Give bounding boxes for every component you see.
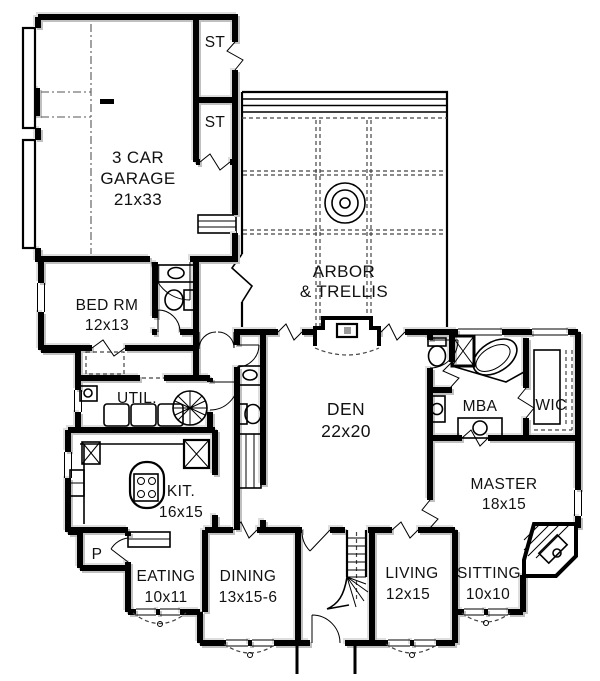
eating-dims: 10x11 [144, 589, 187, 606]
dining-label: DINING [220, 568, 277, 585]
sink-icon [432, 404, 443, 415]
sitting-dims: 10x10 [466, 586, 510, 603]
garage-post-icon [100, 99, 114, 104]
arbor-label: & TRELLIS [300, 282, 388, 301]
powder-room-fixtures [239, 366, 261, 488]
wic-label: WIC [535, 397, 566, 414]
washer-icon [104, 404, 129, 426]
sitting-label: SITTING [457, 565, 521, 582]
living-label: LIVING [385, 565, 438, 582]
entry-stair-icon [327, 530, 368, 609]
garage-door-panel [23, 28, 35, 128]
utility-label: UTIL. [117, 390, 157, 407]
linen-shelves-icon [239, 434, 261, 488]
sink-icon [473, 421, 487, 435]
wic-shelves-icon [534, 350, 572, 430]
spiral-stair-icon [173, 391, 207, 425]
eating-label: EATING [137, 568, 196, 585]
porch-columns [297, 646, 355, 674]
garage-label: GARAGE [100, 169, 175, 188]
bedroom-label: BED RM [76, 297, 139, 314]
living-dims: 12x15 [386, 586, 430, 603]
garage-steps-icon [198, 215, 236, 233]
garage-door-panel [23, 140, 35, 248]
storage1-label: ST [205, 34, 226, 51]
fountain-icon [325, 183, 365, 223]
garage-dims: 21x33 [114, 190, 162, 209]
master-bath-fixtures [428, 332, 524, 438]
kitchen-label: KIT. [167, 483, 195, 500]
bedroom-bath-fixtures [158, 265, 194, 310]
dining-dims: 13x15-6 [219, 589, 278, 606]
toilet-icon [429, 346, 446, 366]
master-dims: 18x15 [482, 496, 526, 513]
den-fireplace-icon [315, 318, 379, 355]
freezer-icon [158, 404, 183, 426]
bedroom-dims: 12x13 [85, 317, 129, 334]
mba-label: MBA [463, 398, 498, 415]
toilet-icon [165, 290, 183, 310]
pantry-label: P [92, 546, 103, 563]
master-label: MASTER [471, 476, 538, 493]
tub-platform [452, 366, 524, 382]
storage2-label: ST [205, 114, 226, 131]
kitchen-dims: 16x15 [159, 504, 203, 521]
floor-plan-svg: 3 CAR GARAGE 21x33 ST ST ARBOR & TRELLIS… [0, 0, 600, 681]
dryer-icon [131, 404, 156, 426]
den-label: DEN [327, 399, 365, 419]
floor-plan: 3 CAR GARAGE 21x33 ST ST ARBOR & TRELLIS… [0, 0, 600, 681]
sink-icon [168, 268, 184, 279]
corner-fireplace-icon [524, 524, 576, 576]
den-dims: 22x20 [321, 421, 371, 441]
garage-label: 3 CAR [112, 148, 164, 167]
arbor-label: ARBOR [313, 262, 375, 281]
closet-shelf [86, 352, 124, 374]
